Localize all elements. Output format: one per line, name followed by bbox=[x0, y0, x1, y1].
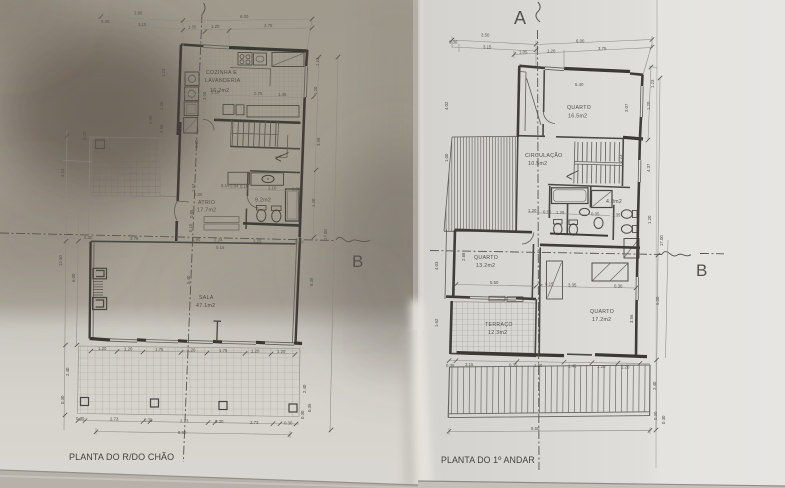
svg-text:0.30: 0.30 bbox=[82, 131, 87, 140]
svg-text:1.05: 1.05 bbox=[188, 25, 197, 30]
svg-text:1.75: 1.75 bbox=[219, 348, 228, 353]
svg-text:10.5m2: 10.5m2 bbox=[528, 161, 547, 167]
svg-text:0.24: 0.24 bbox=[214, 238, 223, 243]
svg-text:1.62: 1.62 bbox=[434, 318, 439, 327]
svg-text:1.20: 1.20 bbox=[547, 49, 556, 54]
svg-text:PLANTA DO R/DO CHÃO: PLANTA DO R/DO CHÃO bbox=[69, 452, 174, 462]
svg-text:3.14: 3.14 bbox=[60, 168, 65, 177]
svg-text:17.2m2: 17.2m2 bbox=[592, 317, 611, 323]
svg-text:3.98: 3.98 bbox=[316, 137, 321, 146]
svg-text:12.3m2: 12.3m2 bbox=[488, 330, 507, 336]
svg-text:4.03: 4.03 bbox=[434, 261, 439, 270]
svg-text:1.00: 1.00 bbox=[444, 153, 449, 162]
svg-text:B: B bbox=[352, 252, 363, 271]
svg-text:TERRAÇO: TERRAÇO bbox=[485, 322, 513, 328]
svg-text:6.39: 6.39 bbox=[309, 277, 314, 286]
svg-text:PLANTA DO 1º ANDAR: PLANTA DO 1º ANDAR bbox=[441, 455, 535, 465]
svg-text:4.02: 4.02 bbox=[444, 101, 449, 110]
svg-text:16.5m2: 16.5m2 bbox=[568, 114, 587, 120]
svg-text:2.88: 2.88 bbox=[461, 252, 466, 261]
svg-text:0.15: 0.15 bbox=[543, 210, 552, 215]
svg-text:0.30: 0.30 bbox=[300, 410, 305, 419]
svg-text:3.15: 3.15 bbox=[465, 362, 474, 367]
svg-text:1.20: 1.20 bbox=[621, 365, 630, 370]
svg-text:0.15: 0.15 bbox=[216, 245, 225, 250]
svg-text:1.57: 1.57 bbox=[191, 183, 196, 192]
svg-text:3.56: 3.56 bbox=[629, 314, 634, 323]
svg-text:0.35: 0.35 bbox=[307, 403, 312, 412]
svg-text:LAVANDERIA: LAVANDERIA bbox=[205, 78, 241, 84]
svg-text:1.20: 1.20 bbox=[187, 348, 196, 353]
svg-text:CIRCULAÇÃO: CIRCULAÇÃO bbox=[525, 152, 563, 159]
svg-text:2.00: 2.00 bbox=[194, 192, 203, 197]
svg-text:8.50: 8.50 bbox=[178, 430, 187, 435]
svg-text:QUARTO: QUARTO bbox=[567, 105, 591, 111]
svg-text:1.05: 1.05 bbox=[519, 50, 528, 55]
svg-text:2.23: 2.23 bbox=[618, 154, 623, 163]
svg-text:0.35: 0.35 bbox=[446, 363, 455, 368]
svg-text:47.1m2: 47.1m2 bbox=[196, 303, 215, 309]
svg-text:0.35: 0.35 bbox=[509, 363, 518, 368]
svg-text:QUARTO: QUARTO bbox=[474, 255, 498, 261]
svg-text:4.37: 4.37 bbox=[646, 163, 651, 172]
svg-text:5.40: 5.40 bbox=[186, 275, 191, 284]
svg-text:3.76: 3.76 bbox=[130, 236, 139, 241]
svg-text:1.20: 1.20 bbox=[313, 86, 318, 95]
svg-text:0.86: 0.86 bbox=[189, 209, 194, 218]
svg-text:1.20: 1.20 bbox=[98, 346, 107, 351]
svg-text:3.15: 3.15 bbox=[138, 22, 147, 27]
svg-text:3.50: 3.50 bbox=[481, 33, 490, 38]
svg-text:3.75: 3.75 bbox=[598, 46, 607, 51]
svg-text:17.00: 17.00 bbox=[323, 229, 328, 240]
svg-text:2.40: 2.40 bbox=[65, 367, 70, 376]
svg-text:3.00: 3.00 bbox=[202, 91, 207, 100]
svg-text:6.00: 6.00 bbox=[576, 39, 585, 44]
svg-text:0.30: 0.30 bbox=[60, 395, 65, 404]
svg-text:1.20: 1.20 bbox=[124, 347, 133, 352]
svg-text:3.15: 3.15 bbox=[483, 45, 492, 50]
svg-text:2.73: 2.73 bbox=[110, 417, 119, 422]
svg-text:8.00: 8.00 bbox=[148, 115, 153, 124]
svg-text:1.90: 1.90 bbox=[192, 237, 201, 242]
svg-text:9.50: 9.50 bbox=[531, 426, 540, 431]
svg-text:6.00: 6.00 bbox=[71, 273, 76, 282]
svg-text:3.07: 3.07 bbox=[624, 103, 629, 112]
svg-text:0.30: 0.30 bbox=[292, 187, 301, 192]
svg-text:0.30: 0.30 bbox=[295, 240, 304, 245]
svg-text:2.20: 2.20 bbox=[194, 139, 199, 148]
svg-text:1.35: 1.35 bbox=[612, 213, 621, 218]
svg-text:0.30: 0.30 bbox=[653, 411, 658, 420]
svg-text:2.40: 2.40 bbox=[302, 384, 307, 393]
svg-text:ATRIO: ATRIO bbox=[198, 200, 215, 206]
svg-text:12.50: 12.50 bbox=[58, 255, 63, 266]
svg-text:COZINHA E: COZINHA E bbox=[206, 70, 237, 76]
svg-text:3.58: 3.58 bbox=[159, 124, 164, 133]
svg-text:5.50: 5.50 bbox=[490, 280, 499, 285]
svg-text:1.23: 1.23 bbox=[650, 79, 655, 88]
svg-text:1.25: 1.25 bbox=[556, 210, 565, 215]
svg-text:1.20: 1.20 bbox=[597, 364, 606, 369]
svg-text:0.84: 0.84 bbox=[230, 184, 239, 189]
svg-text:SALA: SALA bbox=[199, 295, 214, 301]
svg-text:1.20: 1.20 bbox=[277, 349, 286, 354]
svg-text:1.20: 1.20 bbox=[311, 198, 316, 207]
svg-text:17.00: 17.00 bbox=[659, 235, 664, 246]
svg-text:0.15: 0.15 bbox=[545, 282, 554, 287]
svg-text:3.25: 3.25 bbox=[253, 239, 262, 244]
svg-text:1.20: 1.20 bbox=[647, 215, 652, 224]
svg-text:0.30: 0.30 bbox=[614, 284, 623, 289]
svg-text:1.23: 1.23 bbox=[161, 68, 166, 77]
svg-text:0.30: 0.30 bbox=[101, 19, 110, 24]
svg-text:1.20: 1.20 bbox=[211, 24, 220, 29]
svg-text:1.45: 1.45 bbox=[278, 92, 287, 97]
svg-text:2.73: 2.73 bbox=[250, 420, 259, 425]
svg-text:1.20: 1.20 bbox=[251, 349, 260, 354]
svg-text:A: A bbox=[514, 8, 526, 28]
svg-text:1.80: 1.80 bbox=[534, 363, 543, 368]
svg-text:0.35: 0.35 bbox=[591, 212, 600, 217]
svg-text:3.75: 3.75 bbox=[264, 23, 273, 28]
svg-text:0.15: 0.15 bbox=[188, 223, 193, 232]
svg-text:2.73: 2.73 bbox=[180, 419, 189, 424]
svg-text:1.20: 1.20 bbox=[646, 101, 651, 110]
svg-text:0.30: 0.30 bbox=[661, 415, 666, 424]
svg-text:3.35: 3.35 bbox=[568, 283, 577, 288]
svg-text:2.16: 2.16 bbox=[268, 186, 277, 191]
svg-text:3.80: 3.80 bbox=[134, 11, 143, 16]
svg-text:17.7m2: 17.7m2 bbox=[197, 208, 216, 214]
svg-text:QUARTO: QUARTO bbox=[590, 309, 614, 315]
svg-text:1.75: 1.75 bbox=[155, 347, 164, 352]
svg-text:0.75: 0.75 bbox=[254, 91, 263, 96]
svg-text:1.20: 1.20 bbox=[159, 101, 164, 110]
svg-text:0.30: 0.30 bbox=[76, 416, 85, 421]
svg-text:0.15: 0.15 bbox=[240, 184, 249, 189]
svg-text:0.15: 0.15 bbox=[221, 183, 230, 188]
svg-text:0.30: 0.30 bbox=[284, 421, 293, 426]
svg-text:6.00: 6.00 bbox=[240, 14, 249, 19]
svg-text:16.2m2: 16.2m2 bbox=[210, 88, 229, 94]
svg-text:5.40: 5.40 bbox=[575, 82, 584, 87]
svg-text:1.45: 1.45 bbox=[568, 364, 577, 369]
svg-text:9.2m2: 9.2m2 bbox=[255, 198, 271, 204]
svg-text:1.20: 1.20 bbox=[528, 208, 537, 213]
svg-text:13.2m2: 13.2m2 bbox=[476, 263, 495, 269]
svg-text:B: B bbox=[696, 261, 707, 280]
svg-text:4.0m2: 4.0m2 bbox=[606, 199, 622, 205]
svg-text:0.30: 0.30 bbox=[84, 235, 93, 240]
